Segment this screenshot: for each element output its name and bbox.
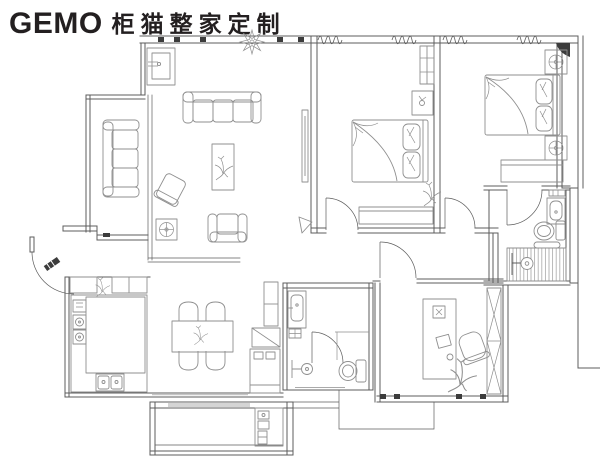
desk <box>423 299 456 379</box>
windows <box>152 25 541 406</box>
toilet-2 <box>534 221 565 248</box>
dining-area <box>172 282 280 393</box>
wardrobe-1 <box>420 46 434 84</box>
entry-door <box>32 252 74 294</box>
dining-chairs <box>179 302 225 370</box>
three-seat-sofa <box>183 92 261 123</box>
dresser-1 <box>359 207 433 224</box>
bath2-sink <box>547 198 565 224</box>
dresser-2 <box>501 160 563 182</box>
office-chair <box>455 329 490 365</box>
coffee-table <box>212 144 234 190</box>
plant-star <box>235 25 269 59</box>
armchair <box>208 214 247 242</box>
study-door <box>380 242 416 278</box>
mouse <box>447 354 453 360</box>
shower-partition <box>335 332 369 360</box>
keyboard <box>436 334 451 348</box>
cooktop <box>73 300 86 344</box>
floor-plan-page: GEMO 柜猫整家定制 <box>0 0 600 474</box>
wardrobe <box>487 288 501 394</box>
shower-area <box>507 248 566 281</box>
wash-basin-niche <box>147 48 175 85</box>
floor-plan-canvas <box>0 0 600 474</box>
fridge <box>250 328 280 393</box>
nightstand-2b <box>545 136 567 160</box>
balcony-bottom <box>255 408 283 446</box>
bathroom2-door <box>507 190 542 225</box>
tv-panel <box>299 110 312 233</box>
kitchen-plant <box>96 278 110 297</box>
railing-posts <box>158 37 304 42</box>
bedroom1-door <box>326 198 358 230</box>
floor-lamp <box>156 219 177 240</box>
shower-head-1 <box>292 360 313 378</box>
laundry-cabinet <box>255 408 283 446</box>
bathroom1-door <box>312 332 343 363</box>
bath2-shelf <box>549 190 565 196</box>
kitchen-sink <box>96 374 124 391</box>
side-sofa <box>103 120 139 197</box>
door-stop <box>103 233 110 237</box>
lounge-chair <box>153 171 189 207</box>
bed-2 <box>485 75 560 135</box>
living-room <box>103 48 312 242</box>
bathroom-vanity <box>288 291 306 328</box>
toilet-1 <box>339 360 366 382</box>
bedroom-1 <box>352 46 441 224</box>
washing-machine <box>289 329 301 338</box>
monitor <box>433 306 445 318</box>
study <box>380 288 501 399</box>
bedroom2-door <box>445 198 475 228</box>
kitchen <box>70 277 147 392</box>
tall-cabinet <box>264 282 278 326</box>
bed-1 <box>352 120 428 182</box>
bathroom-2 <box>507 190 566 281</box>
bedroom1-plant <box>423 182 441 206</box>
nightstand-1 <box>412 91 433 115</box>
wall-cabinets <box>70 277 147 293</box>
table-plant <box>194 326 208 345</box>
